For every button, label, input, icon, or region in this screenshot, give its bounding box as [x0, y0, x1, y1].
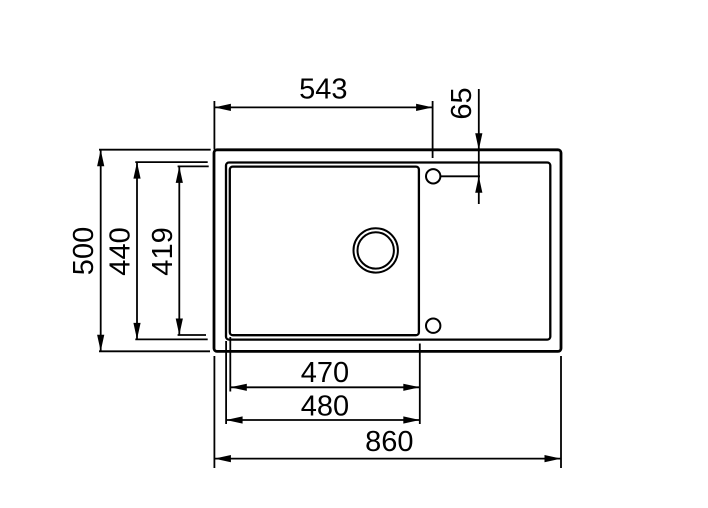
svg-text:419: 419 — [147, 227, 179, 275]
svg-text:470: 470 — [301, 357, 349, 389]
svg-text:65: 65 — [446, 87, 478, 119]
svg-text:440: 440 — [104, 227, 136, 275]
svg-text:860: 860 — [365, 426, 413, 458]
svg-text:500: 500 — [68, 227, 100, 275]
svg-text:543: 543 — [299, 73, 347, 105]
svg-text:480: 480 — [301, 390, 349, 422]
